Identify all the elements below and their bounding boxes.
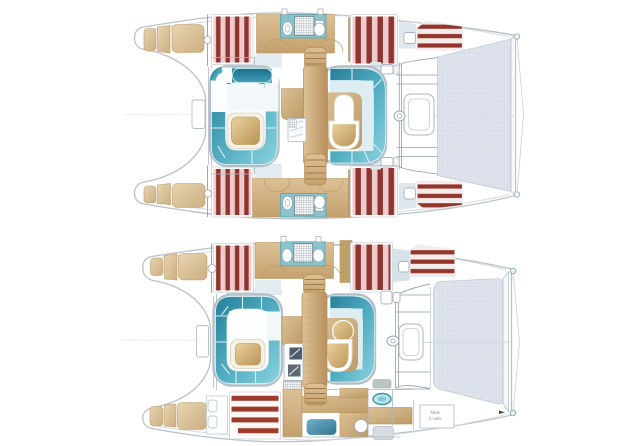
- svg-text:à carte: à carte: [429, 416, 442, 421]
- svg-text:Table: Table: [430, 410, 441, 415]
